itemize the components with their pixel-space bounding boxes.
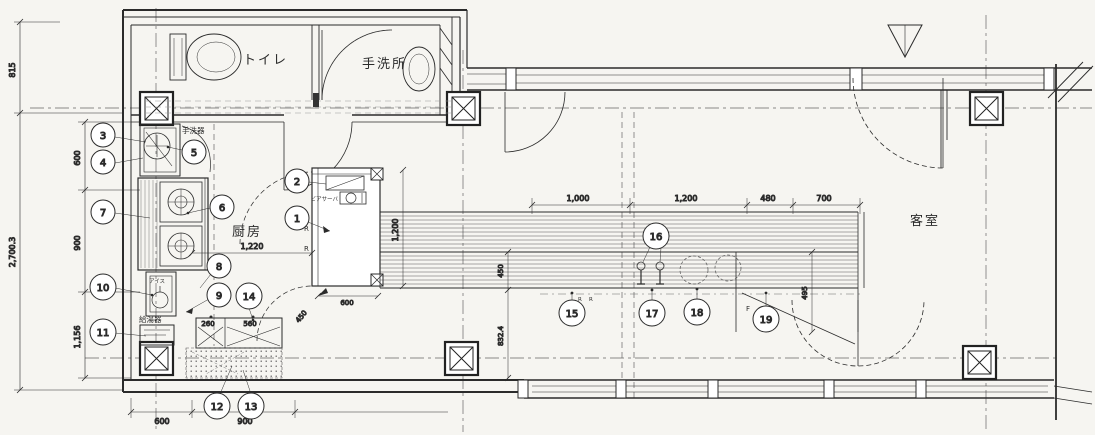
column xyxy=(963,346,996,379)
beer-tap xyxy=(637,262,645,284)
callout-19-num: 19 xyxy=(760,315,773,326)
callout-14: 14 xyxy=(236,283,262,309)
column xyxy=(140,342,173,375)
callout-2: 2 xyxy=(285,169,309,193)
label-water-heater: 給湯器 xyxy=(139,314,162,324)
callout-11: 11 xyxy=(90,319,116,345)
callout-19: 19 xyxy=(753,306,779,332)
dim-block-1200: 1,200 xyxy=(391,219,400,242)
dim-left-1156: 1,156 xyxy=(73,326,82,349)
callout-8: 8 xyxy=(207,254,231,278)
callout-2-num: 2 xyxy=(294,177,300,188)
beer-tap xyxy=(656,262,664,284)
hand-wash-unit xyxy=(140,124,180,176)
dim-counter-700: 700 xyxy=(816,194,831,203)
callout-9: 9 xyxy=(207,283,231,307)
mark-f: F xyxy=(746,305,750,313)
counter-right-end xyxy=(736,252,855,344)
callout-4: 4 xyxy=(91,150,115,174)
callout-9-num: 9 xyxy=(216,291,222,302)
dim-kitchen-1220: 1,220 xyxy=(241,242,264,251)
column xyxy=(140,92,173,125)
dim-left-2700: 2,700.3 xyxy=(8,237,17,268)
counter-block xyxy=(312,168,383,286)
callout-13: 13 xyxy=(238,393,264,419)
callout-1-num: 1 xyxy=(294,214,300,225)
dim-left-900: 900 xyxy=(73,235,82,250)
columns xyxy=(140,92,1003,379)
callout-12: 12 xyxy=(204,393,230,419)
callout-6-num: 6 xyxy=(219,203,225,214)
dim-sink-560: 560 xyxy=(243,320,256,328)
callout-10: 10 xyxy=(90,274,116,300)
callout-3-num: 3 xyxy=(100,131,106,142)
gas-range xyxy=(138,178,208,270)
callout-15-num: 15 xyxy=(566,309,579,320)
floor-plan-sheet: 815 2,700.3 600 900 1,156 600 900 1,220 … xyxy=(0,0,1095,435)
dim-counter-480: 480 xyxy=(760,194,775,203)
label-guest-room: 客室 xyxy=(910,213,940,229)
dimensions: 815 2,700.3 600 900 1,156 600 900 1,220 … xyxy=(8,19,863,426)
callout-16: 16 xyxy=(643,223,669,249)
dim-pass-600: 600 xyxy=(340,299,353,307)
callout-5: 5 xyxy=(182,140,206,164)
label-kitchen: 厨房 xyxy=(232,224,262,240)
floor-hatch-area xyxy=(186,348,282,378)
callout-11-num: 11 xyxy=(97,328,110,339)
column xyxy=(445,342,478,375)
stool xyxy=(680,255,741,284)
callout-18-num: 18 xyxy=(691,308,704,319)
direction-triangle-icon xyxy=(888,25,922,57)
toilet-fixture xyxy=(170,34,241,80)
callout-5-num: 5 xyxy=(191,148,197,159)
dim-bottom-600: 600 xyxy=(154,417,169,426)
dim-counter-495: 495 xyxy=(801,286,809,299)
dim-depth-8324: 832.4 xyxy=(497,325,505,346)
callout-17: 17 xyxy=(639,300,665,326)
callout-17-num: 17 xyxy=(646,309,659,320)
floor-plan-svg: 815 2,700.3 600 900 1,156 600 900 1,220 … xyxy=(0,0,1095,435)
callout-6: 6 xyxy=(210,195,234,219)
callout-1: 1 xyxy=(285,206,309,230)
guest-room-door-left xyxy=(505,92,565,152)
dim-counter-450: 450 xyxy=(497,264,505,277)
dim-left-815: 815 xyxy=(8,62,17,77)
mark-r: R xyxy=(589,297,593,303)
callout-18: 18 xyxy=(684,299,710,325)
label-ice: アイス xyxy=(149,278,165,285)
callout-13-num: 13 xyxy=(245,402,258,413)
callout-7-num: 7 xyxy=(100,208,106,219)
callout-8-num: 8 xyxy=(216,262,222,273)
label-washroom: 手洗所 xyxy=(362,57,407,72)
toilet-room xyxy=(145,30,455,113)
washroom xyxy=(403,47,435,91)
callout-3: 3 xyxy=(91,123,115,147)
guest-room-door-right xyxy=(853,78,943,168)
label-beer-server: ビアサーバ xyxy=(311,195,339,203)
kitchen-equipment xyxy=(138,124,282,378)
callout-15: 15 xyxy=(559,300,585,326)
dim-counter-1000: 1,000 xyxy=(567,194,590,203)
callout-7: 7 xyxy=(91,200,115,224)
callout-16-num: 16 xyxy=(650,232,663,243)
dim-sink-260: 260 xyxy=(201,320,214,328)
dim-counter-1200: 1,200 xyxy=(675,194,698,203)
callout-12-num: 12 xyxy=(211,402,224,413)
callout-10-num: 10 xyxy=(97,283,110,294)
column xyxy=(447,92,480,125)
label-toilet: トイレ xyxy=(243,53,288,68)
dim-left-600: 600 xyxy=(73,150,82,165)
callout-14-num: 14 xyxy=(243,292,256,303)
mark-r: R xyxy=(304,245,309,253)
wash-basin xyxy=(403,47,435,91)
callout-4-num: 4 xyxy=(100,158,106,169)
column xyxy=(970,92,1003,125)
dim-door-450: 450 xyxy=(294,309,309,324)
label-hand-wash: 手洗器 xyxy=(182,125,205,135)
